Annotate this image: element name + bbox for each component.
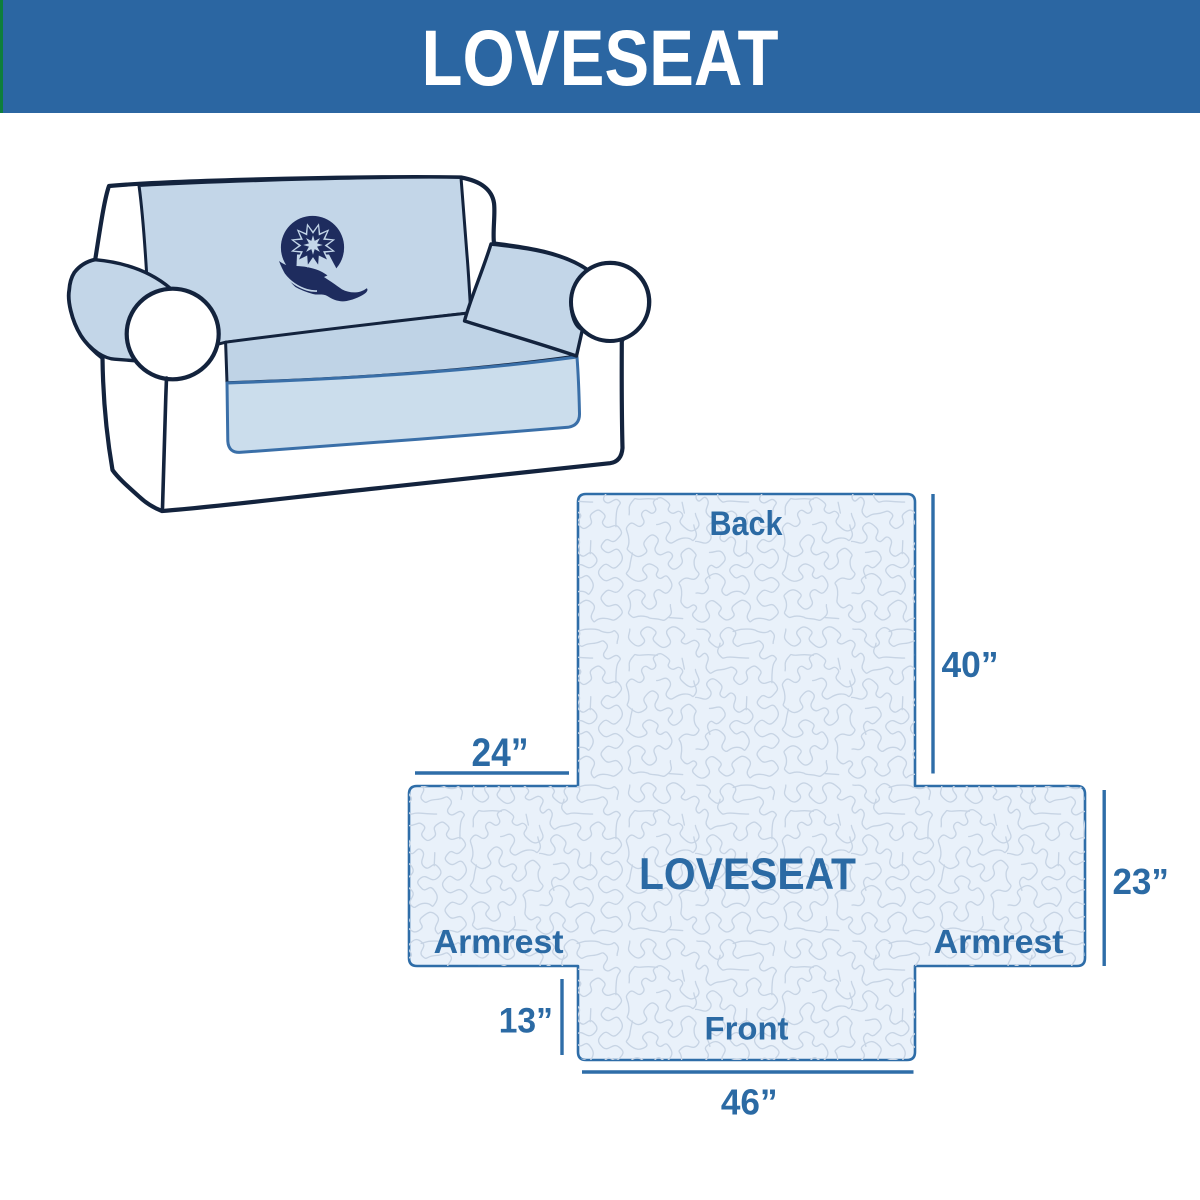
svg-text:23”: 23”: [1112, 861, 1169, 902]
svg-text:Armrest: Armrest: [934, 923, 1064, 960]
svg-text:Armrest: Armrest: [434, 923, 564, 960]
svg-text:Front: Front: [705, 1011, 789, 1047]
svg-text:Back: Back: [710, 505, 783, 543]
svg-text:24”: 24”: [472, 731, 529, 775]
svg-text:LOVESEAT: LOVESEAT: [639, 850, 856, 899]
svg-text:46”: 46”: [721, 1082, 778, 1123]
svg-text:13”: 13”: [499, 1001, 553, 1041]
svg-text:40”: 40”: [942, 644, 999, 685]
